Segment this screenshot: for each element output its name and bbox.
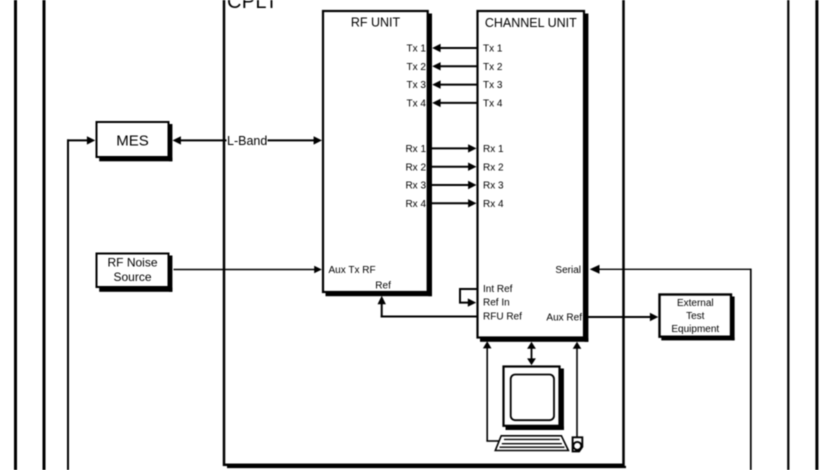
- svg-text:Tx 3: Tx 3: [483, 80, 503, 91]
- svg-text:CPLT: CPLT: [227, 0, 278, 13]
- svg-text:Rx 3: Rx 3: [405, 181, 426, 192]
- svg-text:Tx 2: Tx 2: [483, 62, 503, 73]
- svg-text:RF Noise: RF Noise: [107, 256, 157, 270]
- svg-text:Test: Test: [686, 311, 705, 322]
- svg-text:L-Band: L-Band: [227, 134, 267, 148]
- svg-text:Rx 2: Rx 2: [405, 162, 426, 173]
- svg-text:Rx 2: Rx 2: [483, 162, 504, 173]
- svg-text:Aux Ref: Aux Ref: [546, 313, 582, 324]
- svg-text:External: External: [677, 298, 714, 309]
- svg-text:RF UNIT: RF UNIT: [351, 16, 401, 30]
- svg-text:Tx 3: Tx 3: [407, 80, 427, 91]
- svg-text:Tx 2: Tx 2: [407, 62, 427, 73]
- svg-text:Ref In: Ref In: [483, 298, 510, 309]
- svg-text:Tx 4: Tx 4: [483, 99, 503, 110]
- svg-text:Tx 1: Tx 1: [483, 44, 503, 55]
- svg-text:Serial: Serial: [555, 265, 581, 276]
- svg-text:Rx 3: Rx 3: [483, 181, 504, 192]
- svg-text:Rx 1: Rx 1: [483, 144, 504, 155]
- svg-text:Rx 4: Rx 4: [483, 199, 504, 210]
- svg-text:Tx 4: Tx 4: [407, 99, 427, 110]
- svg-text:Rx 4: Rx 4: [405, 199, 426, 210]
- svg-text:Aux Tx RF: Aux Tx RF: [329, 265, 376, 276]
- svg-text:CHANNEL UNIT: CHANNEL UNIT: [485, 16, 577, 30]
- svg-text:Int Ref: Int Ref: [483, 284, 513, 295]
- svg-text:Tx 1: Tx 1: [407, 44, 427, 55]
- svg-text:Rx 1: Rx 1: [405, 144, 426, 155]
- svg-text:Ref: Ref: [375, 280, 391, 291]
- svg-text:MES: MES: [116, 133, 149, 150]
- svg-text:Source: Source: [113, 270, 151, 284]
- svg-text:RFU Ref: RFU Ref: [483, 311, 522, 322]
- svg-text:Equipment: Equipment: [671, 324, 719, 335]
